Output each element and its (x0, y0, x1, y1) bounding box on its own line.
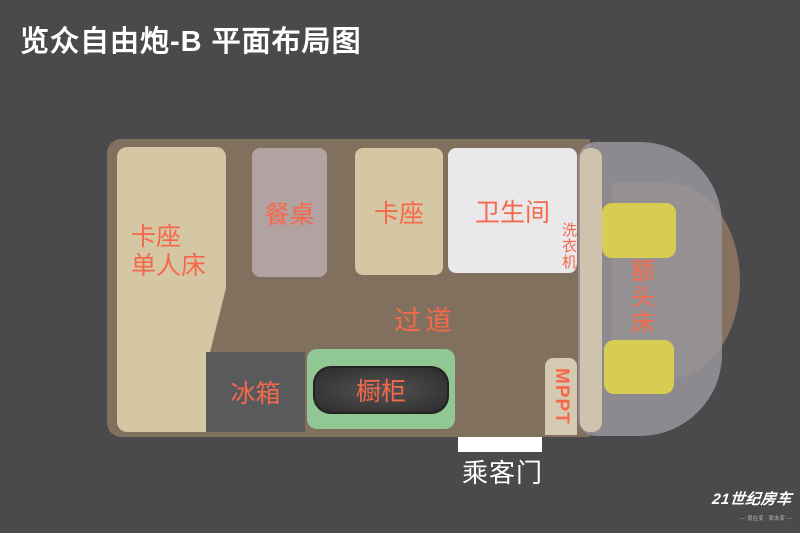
brand-logo: 21世纪房车 — 景在变 · 家未变 — (672, 488, 792, 525)
fridge-block: 冰箱 (206, 352, 305, 432)
cabinet-label: 橱柜 (356, 372, 406, 408)
brand-logo-text: 21世纪房车 (671, 488, 793, 509)
mppt-label: MPPT (550, 368, 572, 425)
cab-seat-right (604, 340, 674, 394)
passenger-door-marker (458, 437, 542, 452)
booth-single-bed-label: 卡座 单人床 (131, 223, 206, 281)
floorplan-diagram: 额头床 卡座 单人床 餐桌 卡座 卫生间 洗衣机 过道 冰箱 橱柜 (0, 0, 800, 533)
bed-label-line2: 单人床 (131, 252, 206, 281)
dining-table-label: 餐桌 (264, 195, 314, 231)
fridge-label: 冰箱 (230, 374, 280, 410)
overhead-bed-label: 额头床 (626, 258, 652, 336)
screenshot-canvas: 览众自由炮-B 平面布局图 额头床 卡座 单人床 餐桌 卡座 卫生间 洗衣机 过… (0, 0, 800, 533)
cabinet-block: 橱柜 (307, 349, 455, 429)
bathroom-label: 卫生间 (475, 193, 550, 229)
cabinet-sink-shape: 橱柜 (313, 366, 449, 414)
brand-logo-tagline: — 景在变 · 家未变 — (726, 513, 792, 521)
cab-seat-left (602, 203, 676, 258)
washer-label: 洗衣机 (561, 222, 576, 270)
aisle-label: 过道 (394, 299, 456, 338)
bed-label-line1: 卡座 (131, 223, 206, 252)
bathroom-block: 卫生间 洗衣机 (448, 148, 577, 273)
passenger-door-label: 乘客门 (462, 453, 543, 490)
cab-partition-bar (580, 148, 602, 432)
dining-table-block: 餐桌 (252, 148, 327, 277)
booth-seat-label: 卡座 (374, 194, 424, 230)
booth-seat-block: 卡座 (355, 148, 443, 275)
mppt-unit-block: MPPT (545, 358, 577, 435)
